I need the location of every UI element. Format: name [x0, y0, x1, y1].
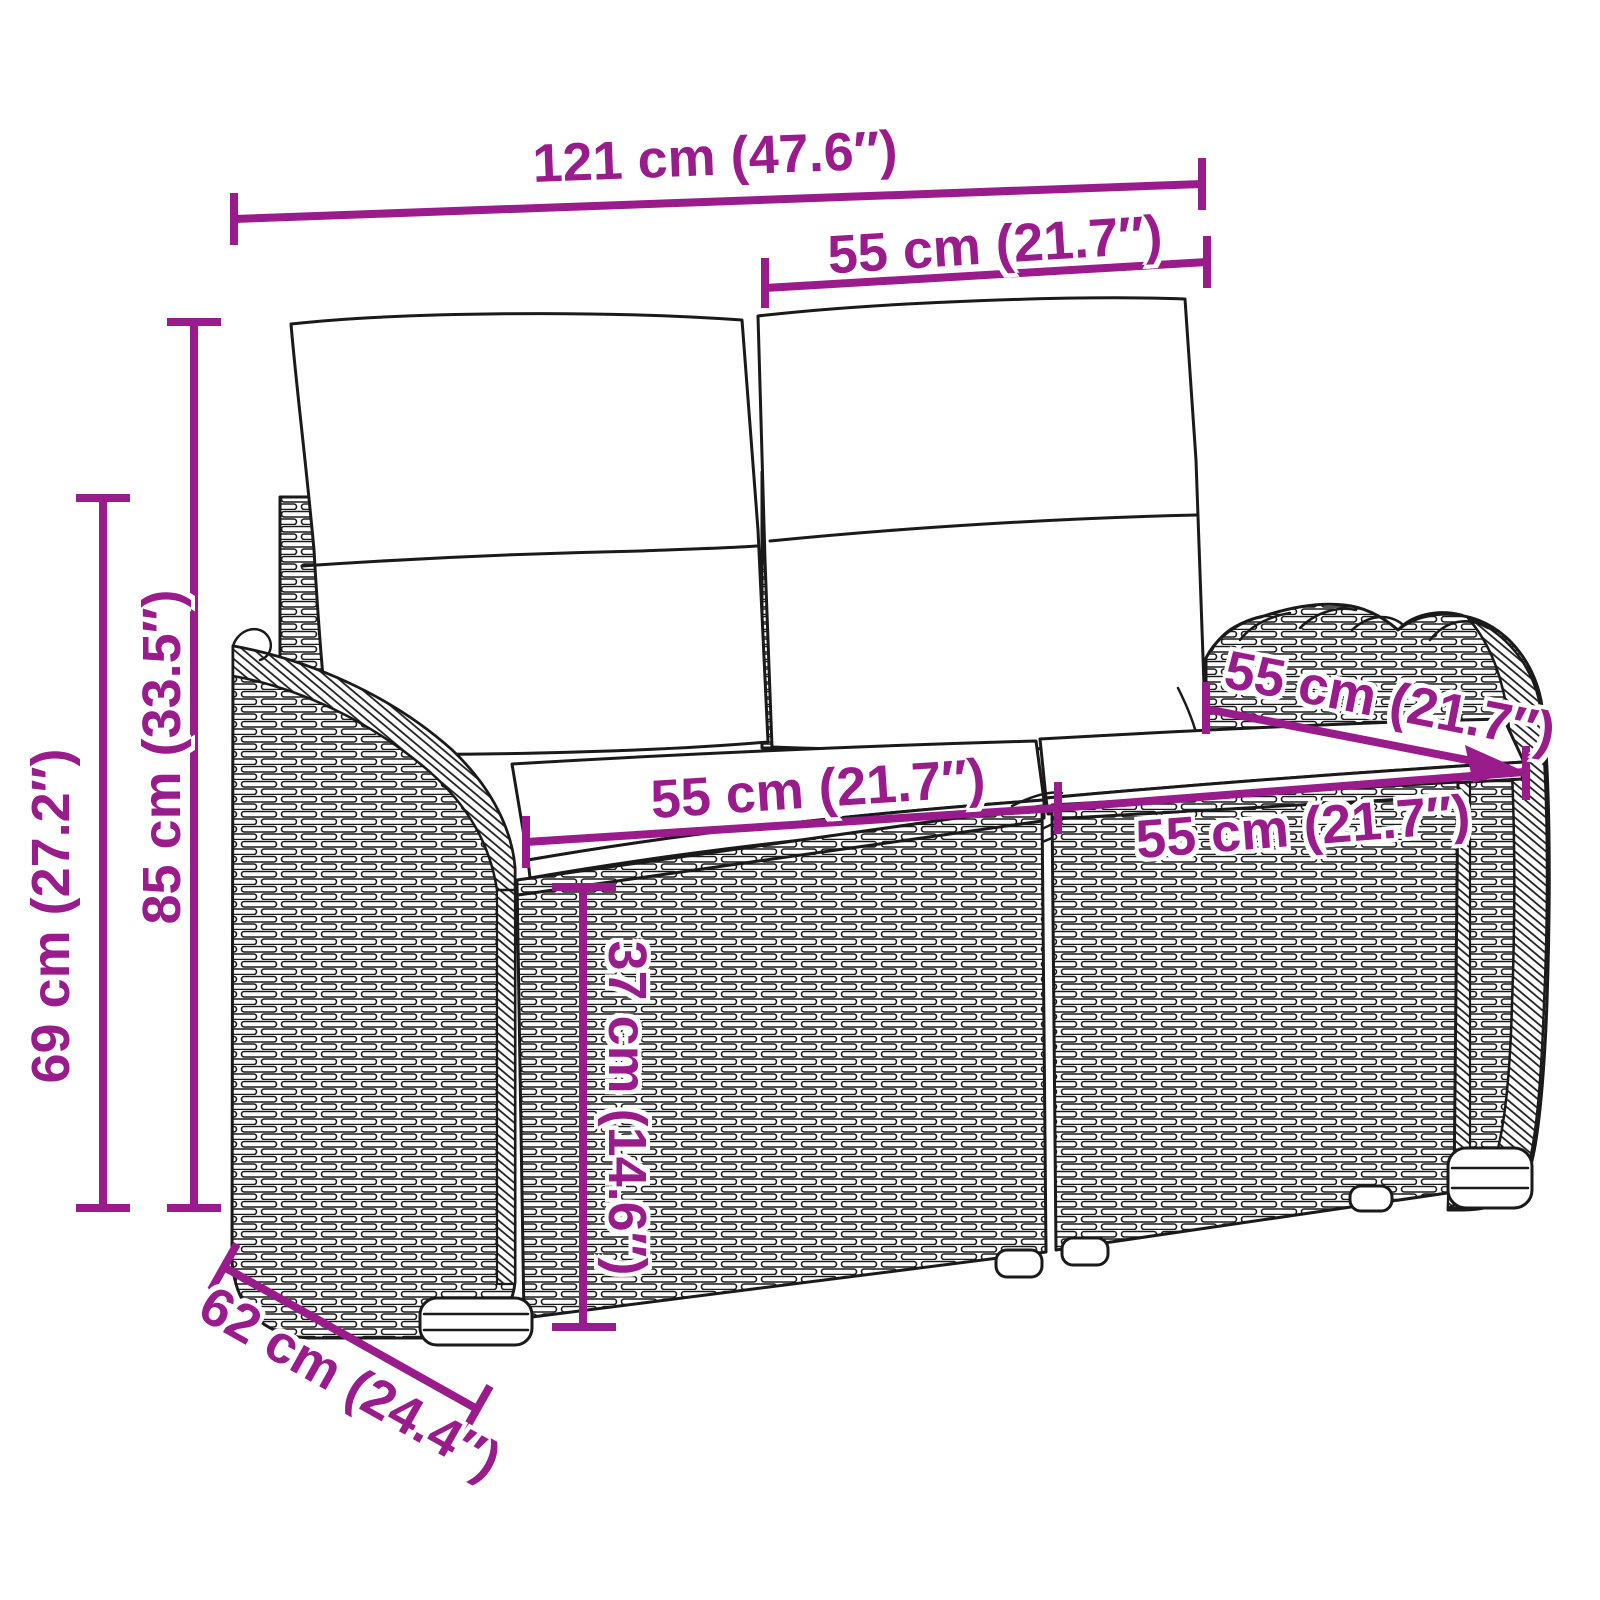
left-arm-base [420, 1298, 532, 1345]
foot-middle-left [996, 1250, 1042, 1277]
foot-middle-right [1062, 1238, 1108, 1265]
dimension-diagram: 121 cm (47.6″) 55 cm (21.7″) 85 cm (33.5… [0, 0, 1600, 1600]
dim-label-armrest-height: 69 cm (27.2″) [24, 748, 78, 1083]
dim-label-total-height: 85 cm (33.5″) [135, 589, 189, 924]
dim-label-seat-height: 37 cm (14.6″) [600, 940, 654, 1275]
foot-right [1350, 1186, 1392, 1211]
dim-label-overall-width: 121 cm (47.6″) [532, 123, 899, 191]
right-arm-base [1448, 1148, 1532, 1208]
back-cushion-right [758, 298, 1206, 750]
dim-line-armrest-height [76, 498, 130, 1208]
left-arm-front-post [497, 880, 515, 1284]
